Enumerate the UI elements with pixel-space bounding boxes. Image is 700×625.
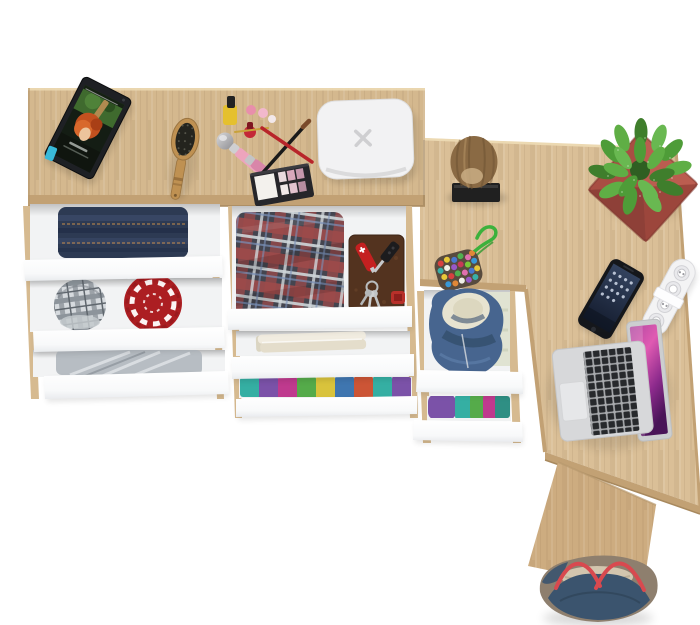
red-knit-hat	[124, 274, 182, 332]
drawer-left-2-front	[33, 327, 225, 352]
laptop-trackpad	[559, 381, 588, 421]
folded-purple-teal-shirts	[428, 394, 510, 420]
lipstick-light-pink	[258, 108, 268, 118]
drawer-middle-3-front	[236, 396, 417, 417]
lipstick-white	[268, 115, 276, 123]
folded-towels	[256, 331, 367, 353]
leather-book	[349, 235, 405, 311]
smart-hub-device	[317, 98, 417, 184]
drawer-middle-1-front	[228, 306, 412, 330]
furniture-render	[0, 0, 700, 625]
drawer-left-1-front	[24, 256, 223, 281]
drawer-right-2-front	[413, 420, 523, 442]
product-photo-scene	[0, 0, 700, 625]
cap-brim	[60, 315, 100, 329]
nail-polish-cap	[227, 96, 235, 108]
plaid-cap	[54, 279, 106, 331]
drawer-middle-2-front	[232, 354, 414, 379]
drawer-unit-left	[24, 204, 229, 402]
plaid-shirt	[236, 212, 344, 318]
log-cut-face	[461, 168, 483, 184]
drawer-unit-middle	[228, 206, 417, 420]
palette-pan-white	[254, 173, 278, 200]
blue-hoodie	[429, 288, 503, 376]
folded-jeans	[58, 207, 188, 258]
tote-bag	[540, 556, 658, 625]
drawer-right-1-front	[416, 370, 523, 394]
lipstick-pink	[246, 105, 256, 115]
